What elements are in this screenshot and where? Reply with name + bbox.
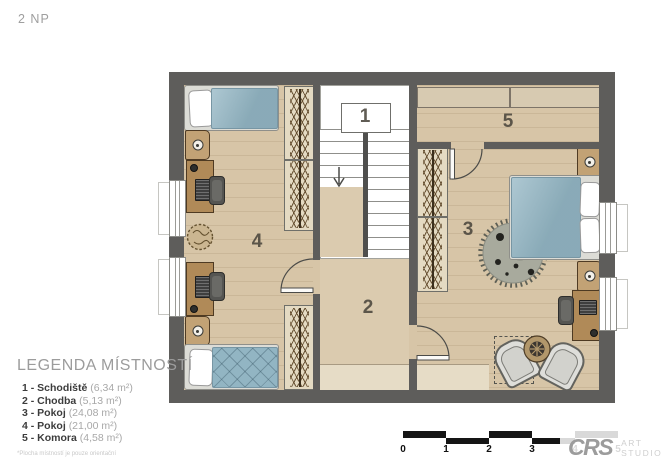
legend-item: 5 - Komora (4,58 m²) xyxy=(22,432,237,445)
knob xyxy=(584,271,595,282)
scale-segment xyxy=(489,431,532,438)
legend-item-area: (6,34 m²) xyxy=(90,382,133,394)
wardrobe-room4-lower xyxy=(284,305,315,390)
floorplan-page: 2 NP xyxy=(0,0,662,468)
knob xyxy=(192,326,203,337)
legend-item: 3 - Pokoj (24,08 m²) xyxy=(22,407,237,420)
legend-item: 4 - Pokoj (21,00 m²) xyxy=(22,420,237,433)
scale-number: 3 xyxy=(529,444,535,455)
legend-item-area: (21,00 m²) xyxy=(69,420,117,432)
doorway-room4 xyxy=(313,260,320,294)
watermark-logo: CRS ART STUDIO xyxy=(560,427,662,468)
legend-item: 1 - Schodiště (6,34 m²) xyxy=(22,382,237,395)
hanger-hatch xyxy=(423,150,442,289)
watermark-line1: ART xyxy=(621,438,662,448)
duvet xyxy=(511,177,581,258)
legend-item-label: 4 - Pokoj xyxy=(22,420,66,432)
laptop xyxy=(579,300,597,315)
desk-chair xyxy=(558,296,574,325)
legend-item-label: 2 - Chodba xyxy=(22,395,76,407)
legend-item-label: 1 - Schodiště xyxy=(22,382,87,394)
wall-top xyxy=(169,72,615,85)
duvet xyxy=(211,88,278,129)
floor-hall-upper xyxy=(320,187,363,257)
window-left-lower xyxy=(169,257,186,317)
pillow xyxy=(579,182,600,218)
storage-cabinets xyxy=(417,87,601,108)
wardrobe-room4-upper xyxy=(284,86,315,231)
legend-item-area: (5,13 m²) xyxy=(79,395,122,407)
wall-left xyxy=(169,72,184,403)
hanger-hatch xyxy=(290,308,309,387)
window-right-lower xyxy=(599,277,617,331)
floor-room3-eaves xyxy=(417,364,489,391)
desk-lamp xyxy=(190,305,198,313)
scale-segment xyxy=(446,438,489,445)
doorway-room3 xyxy=(409,325,417,359)
watermark-brand: CRS xyxy=(568,434,612,461)
wardrobe-room3 xyxy=(417,147,448,292)
watermark-sub: ART STUDIO xyxy=(621,438,662,458)
bed-single-top xyxy=(184,85,279,131)
knob xyxy=(584,157,595,168)
wall-room5-left xyxy=(417,142,451,149)
watermark-line2: STUDIO xyxy=(621,448,662,458)
stair-flight-right xyxy=(368,129,409,257)
legend-footnote: *Plocha místností je pouze orientační xyxy=(17,451,116,457)
desk-lamp xyxy=(590,329,598,337)
nightstand xyxy=(185,316,210,346)
window-right-upper xyxy=(599,202,617,254)
stair-flight-left xyxy=(320,129,363,187)
wardrobe-divider xyxy=(285,159,314,161)
cabinet-divider xyxy=(509,88,511,107)
room-label-4: 4 xyxy=(252,231,263,253)
legend-item-label: 5 - Komora xyxy=(22,432,77,444)
legend-title: LEGENDA MÍSTNOSTÍ xyxy=(17,357,237,375)
room-label-3: 3 xyxy=(463,219,474,241)
room-label-2: 2 xyxy=(363,297,374,319)
desk-lamp xyxy=(190,164,198,172)
bed-double xyxy=(509,175,602,260)
doorway-room5 xyxy=(451,142,484,149)
pillow xyxy=(579,218,600,254)
nightstand xyxy=(185,130,210,160)
legend-item: 2 - Chodba (5,13 m²) xyxy=(22,395,237,408)
floor-hall-eaves xyxy=(320,364,409,391)
wall-room4-hall-upper xyxy=(313,85,320,260)
legend-item-area: (4,58 m²) xyxy=(80,432,123,444)
room-label-5: 5 xyxy=(503,111,514,133)
page-title: 2 NP xyxy=(18,12,50,26)
room-label-1: 1 xyxy=(360,106,371,128)
legend-item-label: 3 - Pokoj xyxy=(22,407,66,419)
laptop xyxy=(195,179,210,201)
desk-chair xyxy=(209,272,225,301)
scale-number: 1 xyxy=(443,444,449,455)
wall-room4-hall-lower xyxy=(313,294,320,390)
wall-room5-right xyxy=(484,142,599,149)
desk-chair xyxy=(209,176,225,205)
wardrobe-divider xyxy=(418,216,447,218)
scale-number: 2 xyxy=(486,444,492,455)
window-left-upper xyxy=(169,180,186,237)
knob xyxy=(192,140,203,151)
legend-item-area: (24,08 m²) xyxy=(69,407,117,419)
scale-segment xyxy=(403,431,446,438)
wall-hall-room3-upper xyxy=(409,85,417,325)
stair-stringer xyxy=(363,129,368,257)
desk-room3 xyxy=(572,290,602,341)
laptop xyxy=(195,276,210,298)
legend: LEGENDA MÍSTNOSTÍ 1 - Schodiště (6,34 m²… xyxy=(17,357,237,445)
scale-number: 0 xyxy=(400,444,406,455)
wall-hall-room3-lower xyxy=(409,359,417,390)
